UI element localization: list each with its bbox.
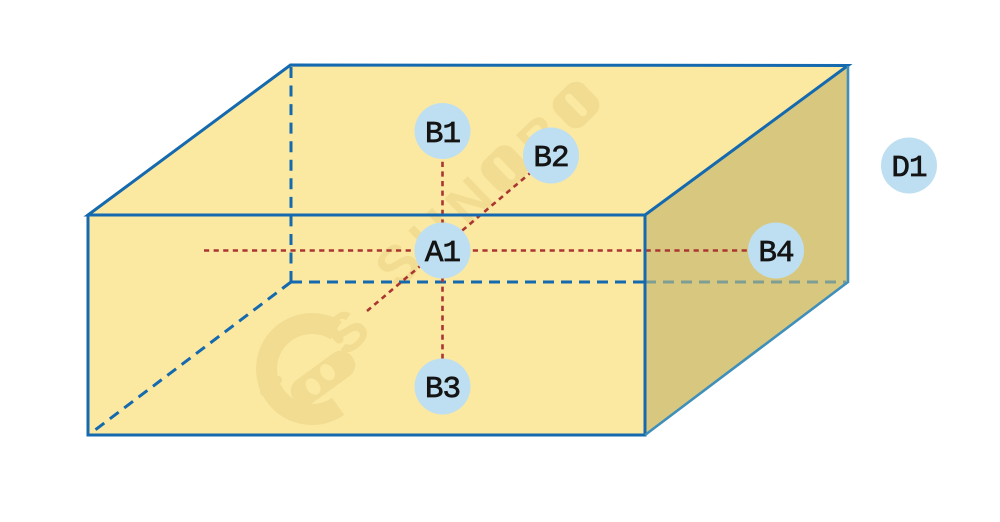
svg-text:B4: B4 (758, 236, 794, 271)
svg-text:B3: B3 (425, 372, 460, 407)
svg-text:D1: D1 (891, 151, 927, 186)
svg-text:A1: A1 (425, 236, 461, 271)
svg-text:B2: B2 (533, 141, 568, 176)
svg-text:B1: B1 (425, 117, 461, 152)
